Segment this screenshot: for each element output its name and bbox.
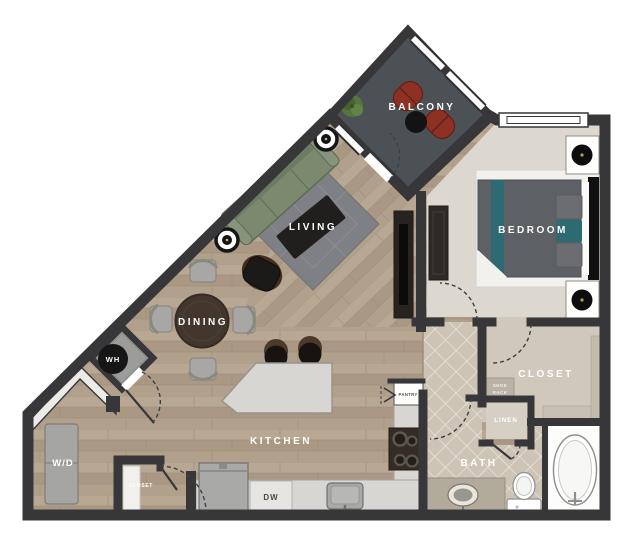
pillow <box>556 243 582 267</box>
room-label-balcony: BALCONY <box>389 102 456 113</box>
room-label-dining: DINING <box>178 317 228 328</box>
floorplan-page: BALCONY LIVING DINING KITCHEN BEDROOM BA… <box>0 0 639 545</box>
label-linen: LINEN <box>494 417 518 424</box>
label-water-heater: WH <box>106 355 121 364</box>
label-washer-dryer: W/D <box>52 458 73 469</box>
label-shoe-rack-2: RACK <box>493 390 508 395</box>
bathtub <box>554 435 597 505</box>
room-label-bedroom: BEDROOM <box>498 225 568 236</box>
label-pantry: PANTRY <box>399 392 418 397</box>
room-label-living: LIVING <box>289 222 337 233</box>
vanity <box>423 478 505 513</box>
pillow <box>556 195 582 219</box>
room-label-bath: BATH <box>460 458 497 469</box>
headboard <box>588 177 599 280</box>
dresser <box>429 206 448 280</box>
wall-return-block <box>106 396 120 412</box>
dining-chair <box>189 358 217 380</box>
nightstand <box>566 136 599 174</box>
dining-chair <box>189 260 217 282</box>
stove <box>389 428 423 470</box>
room-label-kitchen: KITCHEN <box>250 436 312 447</box>
entry-closet-panel <box>123 466 140 512</box>
room-label-closet: CLOSET <box>518 369 574 380</box>
patio-table <box>405 111 427 133</box>
dining-chair <box>150 305 172 333</box>
label-dishwasher: DW <box>263 493 278 502</box>
bedroom-window <box>499 113 588 127</box>
label-shoe-rack-1: SHOE <box>493 383 508 388</box>
dining-chair <box>233 306 255 334</box>
bar-stool <box>298 336 322 366</box>
floorplan-canvas: BALCONY LIVING DINING KITCHEN BEDROOM BA… <box>0 0 639 545</box>
label-entry-closet: CLOSET <box>129 483 153 489</box>
tv-console <box>394 211 413 318</box>
refrigerator <box>199 463 248 511</box>
kitchen-sink <box>327 483 363 513</box>
nightstand <box>566 281 599 319</box>
